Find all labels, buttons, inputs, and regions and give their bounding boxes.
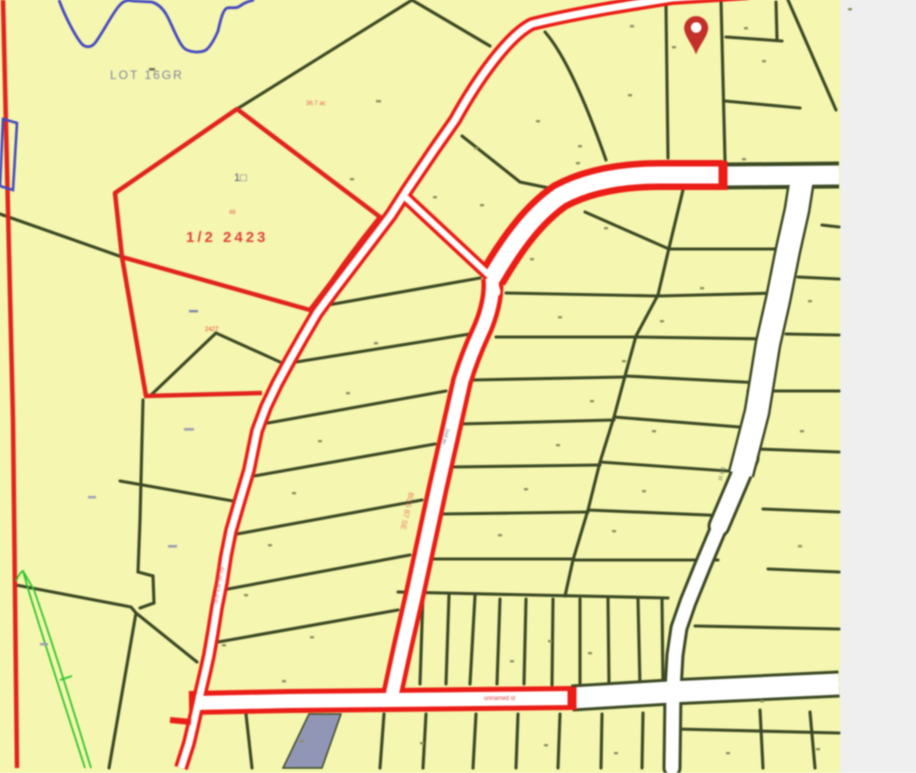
svg-text:36.7 ac: 36.7 ac [306, 101, 326, 107]
svg-text:1/2 2423: 1/2 2423 [186, 229, 268, 246]
svg-text:1□: 1□ [234, 172, 247, 184]
svg-text:46: 46 [229, 210, 236, 216]
svg-text:2427: 2427 [205, 327, 219, 333]
svg-text:unnamed st: unnamed st [484, 696, 516, 702]
svg-text:LOT 16GR: LOT 16GR [110, 68, 184, 82]
